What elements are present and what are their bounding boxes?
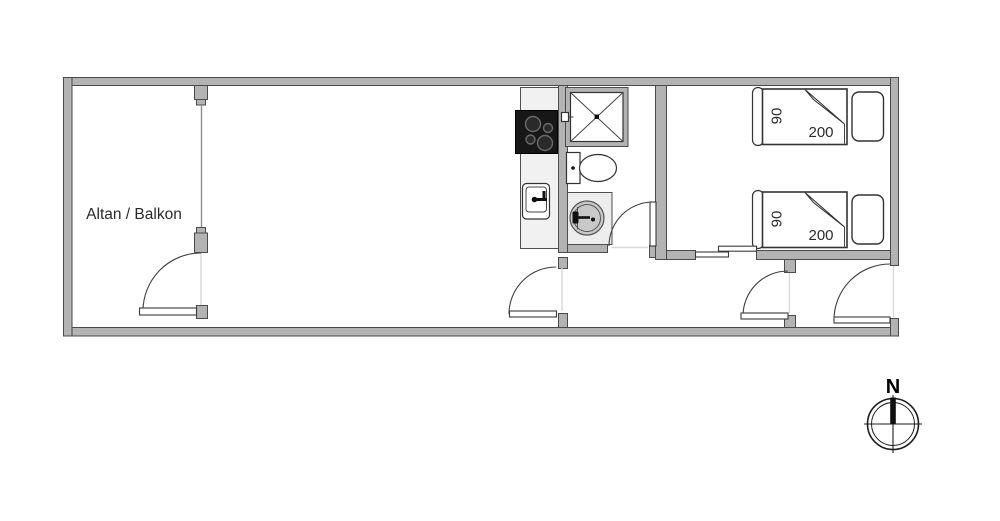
sink-faucet-neck (543, 191, 546, 199)
wall-living-door-jamb-top (559, 258, 568, 269)
bed-width-label: 90 (769, 108, 786, 125)
washbasin-icon (568, 193, 613, 245)
toilet-icon (567, 153, 617, 184)
hall-door (741, 271, 790, 319)
door-leaf (741, 313, 788, 319)
bed-width-label: 90 (769, 211, 786, 228)
partition-post-mid (195, 233, 208, 253)
door-swing-arc (609, 202, 653, 246)
toilet-button (571, 166, 575, 170)
bed-1: 90 200 (753, 88, 884, 146)
bed-pillow (852, 92, 884, 141)
burner-icon (526, 117, 541, 132)
door-swing-arc (143, 253, 201, 311)
bathroom-area (562, 88, 629, 245)
kitchen-sink-icon (523, 184, 550, 220)
partition-post-top (195, 86, 208, 100)
wall-bath-bedroom (656, 86, 667, 260)
burner-icon (538, 136, 553, 151)
door-swing-arc (509, 267, 556, 314)
compass-north-label: N (886, 376, 900, 398)
wall-east-lower (891, 319, 899, 337)
balcony-door (140, 253, 202, 315)
door-leaf (510, 311, 557, 317)
wall-east-upper (891, 78, 899, 266)
partition-post-bottom (197, 306, 208, 319)
bed-length-label: 200 (808, 124, 833, 141)
stove-icon (516, 111, 558, 154)
entry-door (834, 264, 894, 323)
burner-icon (526, 135, 535, 144)
bathroom-door (609, 202, 656, 248)
sliding-panel (719, 246, 757, 251)
bed-length-label: 200 (808, 227, 833, 244)
bedroom-sliding-door (696, 246, 757, 257)
partition-post-mid-cap (197, 228, 206, 234)
balcony-label: Altan / Balkon (86, 206, 182, 223)
floor-plan-page: 90 200 90 200 Altan / B (0, 0, 1000, 521)
shower-icon (562, 88, 629, 147)
floor-plan-drawing: 90 200 90 200 Altan / B (0, 0, 1000, 521)
bed-2: 90 200 (753, 191, 884, 249)
compass-north-needle (890, 398, 896, 425)
wall-hall-north-east (757, 251, 891, 260)
wall-hall-north-west (667, 251, 696, 260)
shower-valve-icon (562, 113, 569, 122)
washbasin-drain (591, 218, 595, 222)
door-swing-arc (743, 271, 788, 316)
wall-south (64, 328, 899, 337)
door-leaf (834, 317, 890, 323)
wall-north (64, 78, 899, 86)
partition-post-top-cap (197, 100, 206, 106)
compass-rose: N (864, 376, 922, 453)
door-swing-arc (834, 264, 890, 320)
burner-icon (544, 124, 553, 133)
bed-pillow (852, 195, 884, 244)
washbasin-tap (573, 212, 579, 224)
wall-west (64, 78, 73, 337)
door-leaf (140, 308, 197, 315)
sliding-panel (696, 252, 729, 257)
door-leaf (650, 202, 656, 246)
toilet-bowl (580, 155, 617, 182)
living-room-door (509, 267, 562, 317)
wall-living-door-jamb-bottom (559, 314, 568, 328)
kitchen-area (516, 88, 559, 249)
shower-drain (595, 115, 600, 120)
